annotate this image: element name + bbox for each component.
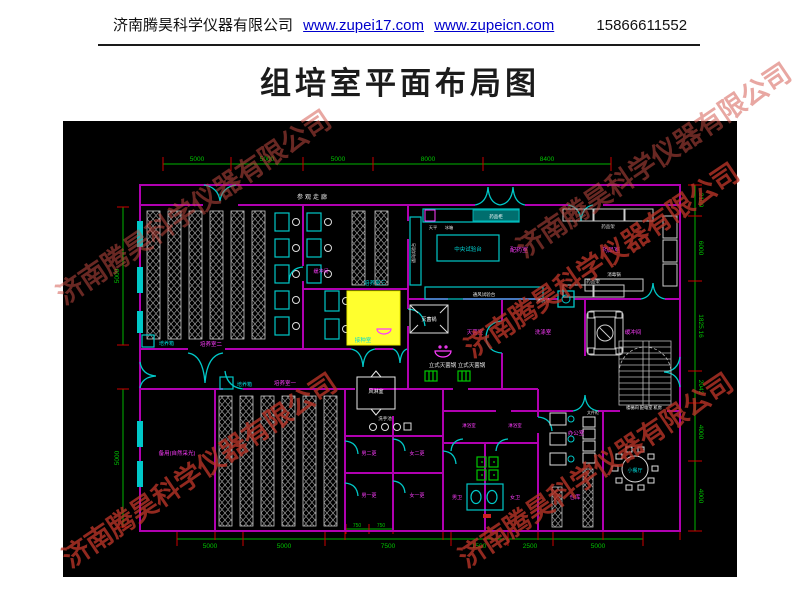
label-handsink: 洗手池 (378, 415, 392, 422)
label-med-cabinet: 药品柜 (489, 213, 503, 220)
dim-bottom-6: 5000 (591, 543, 606, 550)
toilet-stalls (477, 457, 498, 480)
label-storage: 仓库 (569, 493, 581, 501)
dim-right-2: 6000 (697, 241, 704, 256)
dim-right-6: 4000 (697, 489, 704, 504)
dim-left-1: 5000 (114, 268, 121, 283)
page: 济南腾昊科学仪器有限公司 www.zupei17.com www.zupeicn… (0, 0, 800, 600)
label-incubator-a: 培养箱 (159, 340, 174, 347)
dim-bottom-1: 5000 (203, 543, 218, 550)
dim-bottom-3: 7500 (381, 543, 396, 550)
culture-racks (147, 211, 388, 526)
label-side-bench: 通风试验台 (410, 243, 416, 263)
label-chg-m1: 男一更 (361, 493, 376, 499)
label-spare: 备用(自然采光) (159, 449, 196, 457)
dim-right-5: 4000 (697, 425, 704, 440)
phone-number: 15866611552 (596, 17, 687, 34)
dim-bottom-5: 2500 (523, 543, 538, 550)
page-title: 组培室平面布局图 (0, 58, 800, 103)
label-utility: 楼梯间 配电室 机房 (626, 404, 662, 411)
wash-sink-bowl (562, 295, 570, 303)
dim-top-2: 5000 (260, 156, 275, 163)
label-room2: 培养室二 (200, 340, 223, 348)
company-name: 济南腾昊科学仪器有限公司 (113, 17, 293, 34)
label-wash-sink: 清洗池 (536, 297, 550, 304)
clean-benches (275, 213, 339, 339)
label-cabinet: 文件柜 (587, 409, 599, 415)
stairs (619, 341, 671, 405)
website-link-1[interactable]: www.zupei17.com (303, 17, 424, 34)
label-corridor: 参观走廊 (297, 193, 329, 201)
label-buffer-right: 缓冲间 (625, 328, 642, 336)
dim-top-4: 8000 (421, 156, 436, 163)
label-central-bench: 中央试验台 (454, 245, 482, 253)
dim-left-2: 5000 (114, 450, 121, 465)
label-sterilizer-pot: 灭菌锅 (421, 316, 436, 323)
label-chg-f2: 女二更 (409, 450, 424, 457)
label-chg-f1: 女一更 (409, 492, 424, 499)
label-office: 办公室 (568, 429, 585, 437)
label-room3: 培养室三 (364, 279, 387, 287)
label-shower-r: 淋浴室 (508, 422, 522, 429)
dim-bottom-2: 5000 (277, 543, 292, 550)
label-prep: 配药室 (510, 246, 528, 254)
office-desks (550, 413, 595, 465)
label-chg-m2: 男二更 (361, 451, 376, 457)
label-wc-m: 男卫 (452, 495, 462, 501)
dim-top-3: 5000 (331, 156, 346, 163)
label-wc-f: 女卫 (510, 494, 520, 501)
label-room1: 培养室一 (274, 379, 297, 387)
label-balance: 天平 (429, 225, 437, 231)
label-wash: 洗涤室 (535, 328, 552, 336)
dim-inner-1: 750 (353, 523, 362, 529)
label-med-shelf-top: 药品架 (601, 223, 615, 230)
website-link-2[interactable]: www.zupeicn.com (434, 17, 554, 34)
dimension-ticks (117, 157, 702, 546)
label-buffer-mid: 缓冲间 (313, 268, 328, 275)
dim-top-5: 8400 (540, 156, 555, 163)
label-shower-l: 淋浴室 (462, 422, 476, 429)
highlight-climate-chamber (347, 291, 400, 345)
label-disinfect-pot: 消毒锅 (607, 271, 621, 278)
dim-right-1: 2100 (697, 193, 704, 208)
label-med-shelf-bottom: 药品架 (586, 278, 600, 285)
label-inoculation: 接种室 (355, 336, 372, 344)
label-fume-bench: 通风试验台 (473, 291, 496, 298)
dim-top-1: 5000 (190, 156, 205, 163)
prep-room-benches (410, 209, 543, 299)
floorplan-canvas: 5000 5000 5000 8000 8400 2100 6000 1825.… (63, 121, 737, 577)
floor-drain-mark (483, 514, 491, 518)
autoclave-units (425, 371, 470, 381)
label-autoclaves: 立式灭菌锅 立式灭菌锅 (429, 361, 486, 369)
office-chairs (568, 416, 574, 462)
fridge-symbol (425, 210, 435, 221)
dim-right-4: 2042 (697, 380, 704, 395)
label-medicine: 药品室 (602, 246, 620, 254)
dim-right-3: 1825.16 (697, 314, 704, 338)
wash-sink-box (558, 291, 574, 307)
header-divider (98, 44, 700, 46)
label-airshower: 风淋室 (368, 388, 383, 395)
label-sterilize: 灭菌室 (467, 328, 484, 336)
label-fridge: 冰箱 (445, 224, 453, 231)
hand-sinks (370, 423, 412, 431)
label-dining: 小餐厅 (627, 467, 642, 474)
label-incubator-b: 培养箱 (237, 381, 252, 388)
dim-inner-2: 750 (377, 523, 386, 529)
header: 济南腾昊科学仪器有限公司 www.zupei17.com www.zupeicn… (0, 14, 800, 35)
floorplan-svg: 5000 5000 5000 8000 8400 2100 6000 1825.… (63, 121, 737, 577)
dim-bottom-4: 1500 (472, 543, 487, 550)
